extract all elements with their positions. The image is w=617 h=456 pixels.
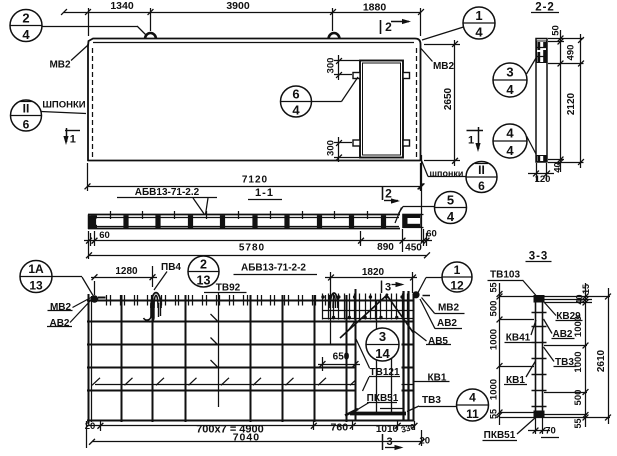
svg-text:АБВ13-71-2.2: АБВ13-71-2.2	[135, 187, 200, 198]
svg-text:1280: 1280	[115, 266, 138, 277]
svg-text:15: 15	[581, 284, 591, 294]
svg-text:4: 4	[506, 82, 514, 97]
svg-text:1000: 1000	[489, 329, 500, 350]
svg-text:55: 55	[573, 418, 583, 428]
svg-text:АВ2: АВ2	[49, 318, 69, 329]
svg-text:ТВ3: ТВ3	[422, 395, 441, 406]
svg-text:4: 4	[22, 27, 30, 42]
svg-text:2120: 2120	[566, 92, 577, 115]
svg-text:II: II	[23, 101, 30, 115]
svg-text:1А: 1А	[28, 262, 44, 276]
svg-text:4: 4	[506, 143, 514, 158]
svg-text:II: II	[478, 163, 485, 177]
svg-text:4: 4	[475, 24, 483, 39]
svg-text:1: 1	[468, 135, 474, 147]
svg-text:АВ2: АВ2	[437, 318, 457, 329]
svg-text:50: 50	[551, 25, 562, 36]
svg-text:ТВ92: ТВ92	[216, 282, 241, 293]
svg-text:4: 4	[447, 209, 455, 224]
svg-text:3: 3	[379, 329, 386, 344]
svg-text:760: 760	[331, 422, 349, 434]
svg-text:890: 890	[377, 242, 394, 253]
svg-text:КВ41: КВ41	[506, 332, 531, 343]
svg-text:3: 3	[506, 64, 513, 79]
svg-text:60: 60	[99, 230, 110, 241]
svg-text:2: 2	[200, 258, 207, 272]
svg-text:2610: 2610	[596, 349, 607, 372]
svg-text:70: 70	[545, 426, 556, 437]
svg-text:55: 55	[489, 282, 499, 292]
svg-text:ПВ4: ПВ4	[161, 262, 181, 273]
svg-text:12: 12	[450, 279, 464, 293]
svg-text:1010: 1010	[376, 424, 399, 435]
svg-text:ТВ103: ТВ103	[490, 269, 520, 280]
svg-text:500: 500	[489, 301, 500, 317]
svg-text:7040: 7040	[233, 432, 260, 444]
svg-text:11: 11	[466, 407, 479, 421]
svg-text:1880: 1880	[363, 2, 387, 14]
svg-text:3: 3	[386, 436, 392, 448]
svg-text:2650: 2650	[443, 87, 454, 110]
svg-text:ШПОНКИ: ШПОНКИ	[42, 100, 85, 111]
svg-text:АВ5: АВ5	[428, 336, 448, 347]
svg-text:МВ2: МВ2	[438, 302, 460, 313]
svg-text:МВ2: МВ2	[49, 59, 71, 70]
svg-text:120: 120	[535, 174, 551, 185]
svg-text:500: 500	[573, 390, 584, 406]
svg-text:5780: 5780	[239, 242, 265, 253]
svg-text:3-3: 3-3	[529, 250, 549, 262]
svg-text:4: 4	[469, 391, 476, 405]
svg-text:40: 40	[575, 294, 585, 304]
svg-text:2: 2	[22, 10, 29, 25]
svg-text:4: 4	[292, 103, 300, 118]
svg-text:МВ2: МВ2	[50, 302, 72, 313]
svg-text:2-2: 2-2	[535, 1, 555, 13]
svg-text:1: 1	[475, 8, 482, 23]
svg-text:650: 650	[333, 351, 350, 362]
svg-text:1-1: 1-1	[255, 187, 274, 199]
svg-text:13: 13	[29, 279, 43, 293]
svg-text:2: 2	[385, 20, 392, 34]
svg-text:6: 6	[478, 179, 485, 193]
svg-text:5: 5	[447, 192, 454, 207]
svg-text:13: 13	[197, 274, 211, 288]
svg-text:МВ2: МВ2	[433, 61, 455, 72]
svg-text:6: 6	[292, 87, 299, 102]
svg-text:3900: 3900	[226, 0, 250, 12]
svg-text:3: 3	[385, 282, 391, 294]
svg-text:60: 60	[426, 229, 437, 240]
svg-text:1: 1	[454, 263, 461, 277]
svg-text:55: 55	[489, 409, 499, 419]
svg-text:7120: 7120	[242, 174, 268, 185]
svg-text:450: 450	[405, 242, 422, 253]
svg-text:АБВ13-71-2-2: АБВ13-71-2-2	[241, 262, 306, 273]
svg-text:1820: 1820	[362, 267, 385, 278]
svg-text:4: 4	[506, 125, 514, 140]
svg-text:1000: 1000	[489, 379, 500, 400]
svg-text:490: 490	[566, 45, 577, 61]
svg-text:40: 40	[553, 162, 564, 173]
svg-text:6: 6	[23, 117, 30, 131]
svg-text:1340: 1340	[110, 0, 134, 12]
svg-text:ПКВ51: ПКВ51	[484, 430, 516, 441]
svg-text:14: 14	[375, 346, 390, 361]
svg-text:1: 1	[70, 134, 76, 146]
svg-text:1000: 1000	[573, 351, 584, 372]
